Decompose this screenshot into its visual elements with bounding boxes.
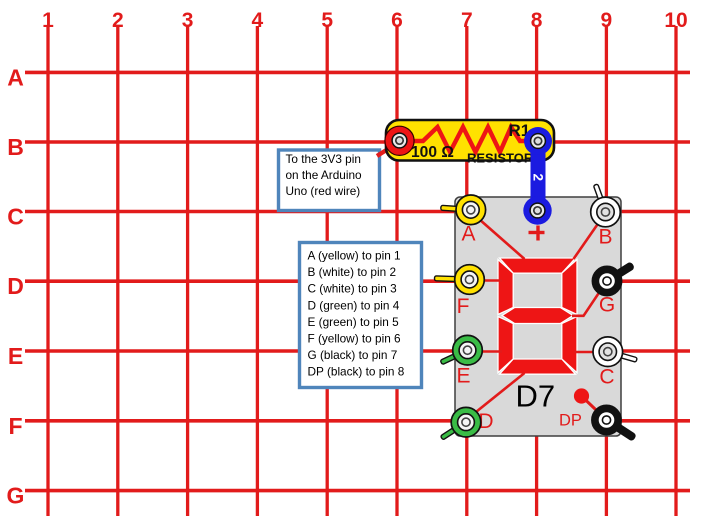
svg-text:G: G [599, 294, 615, 317]
svg-text:B: B [598, 226, 612, 249]
svg-text:C: C [599, 366, 614, 389]
svg-text:9: 9 [601, 9, 613, 32]
svg-text:2: 2 [112, 9, 124, 32]
svg-text:G: G [7, 483, 25, 509]
svg-text:DP: DP [559, 412, 582, 430]
svg-text:D: D [7, 273, 24, 299]
svg-text:7: 7 [461, 9, 473, 32]
svg-text:D7: D7 [516, 379, 556, 414]
svg-text:6: 6 [391, 9, 403, 32]
svg-text:E: E [456, 365, 470, 388]
svg-text:Uno (red wire): Uno (red wire) [286, 184, 361, 198]
svg-text:C (white) to pin 3: C (white) to pin 3 [308, 282, 398, 296]
svg-text:B (white) to pin 2: B (white) to pin 2 [308, 265, 397, 279]
svg-text:A (yellow) to pin 1: A (yellow) to pin 1 [308, 249, 401, 263]
svg-text:RESISTOR: RESISTOR [467, 151, 534, 166]
svg-text:B: B [7, 134, 24, 160]
svg-text:4: 4 [252, 9, 264, 32]
svg-text:To the 3V3 pin: To the 3V3 pin [286, 152, 361, 166]
svg-text:F: F [8, 413, 22, 439]
svg-text:1: 1 [42, 9, 54, 32]
svg-text:on the Arduino: on the Arduino [286, 168, 363, 182]
svg-text:A: A [461, 223, 475, 246]
svg-text:DP (black) to pin 8: DP (black) to pin 8 [308, 365, 405, 379]
svg-text:100 Ω: 100 Ω [411, 144, 454, 161]
svg-text:A: A [7, 64, 24, 90]
svg-text:10: 10 [664, 9, 687, 32]
svg-text:G (black) to pin 7: G (black) to pin 7 [308, 348, 398, 362]
svg-text:E: E [8, 343, 23, 369]
svg-text:3: 3 [182, 9, 194, 32]
svg-text:2: 2 [531, 174, 546, 182]
svg-text:8: 8 [531, 9, 543, 32]
svg-text:D (green) to pin 4: D (green) to pin 4 [308, 298, 400, 312]
svg-text:5: 5 [321, 9, 333, 32]
svg-text:C: C [7, 204, 24, 230]
svg-text:F: F [457, 295, 470, 318]
svg-text:E (green) to pin 5: E (green) to pin 5 [308, 315, 400, 329]
svg-text:F (yellow) to pin 6: F (yellow) to pin 6 [308, 332, 402, 346]
